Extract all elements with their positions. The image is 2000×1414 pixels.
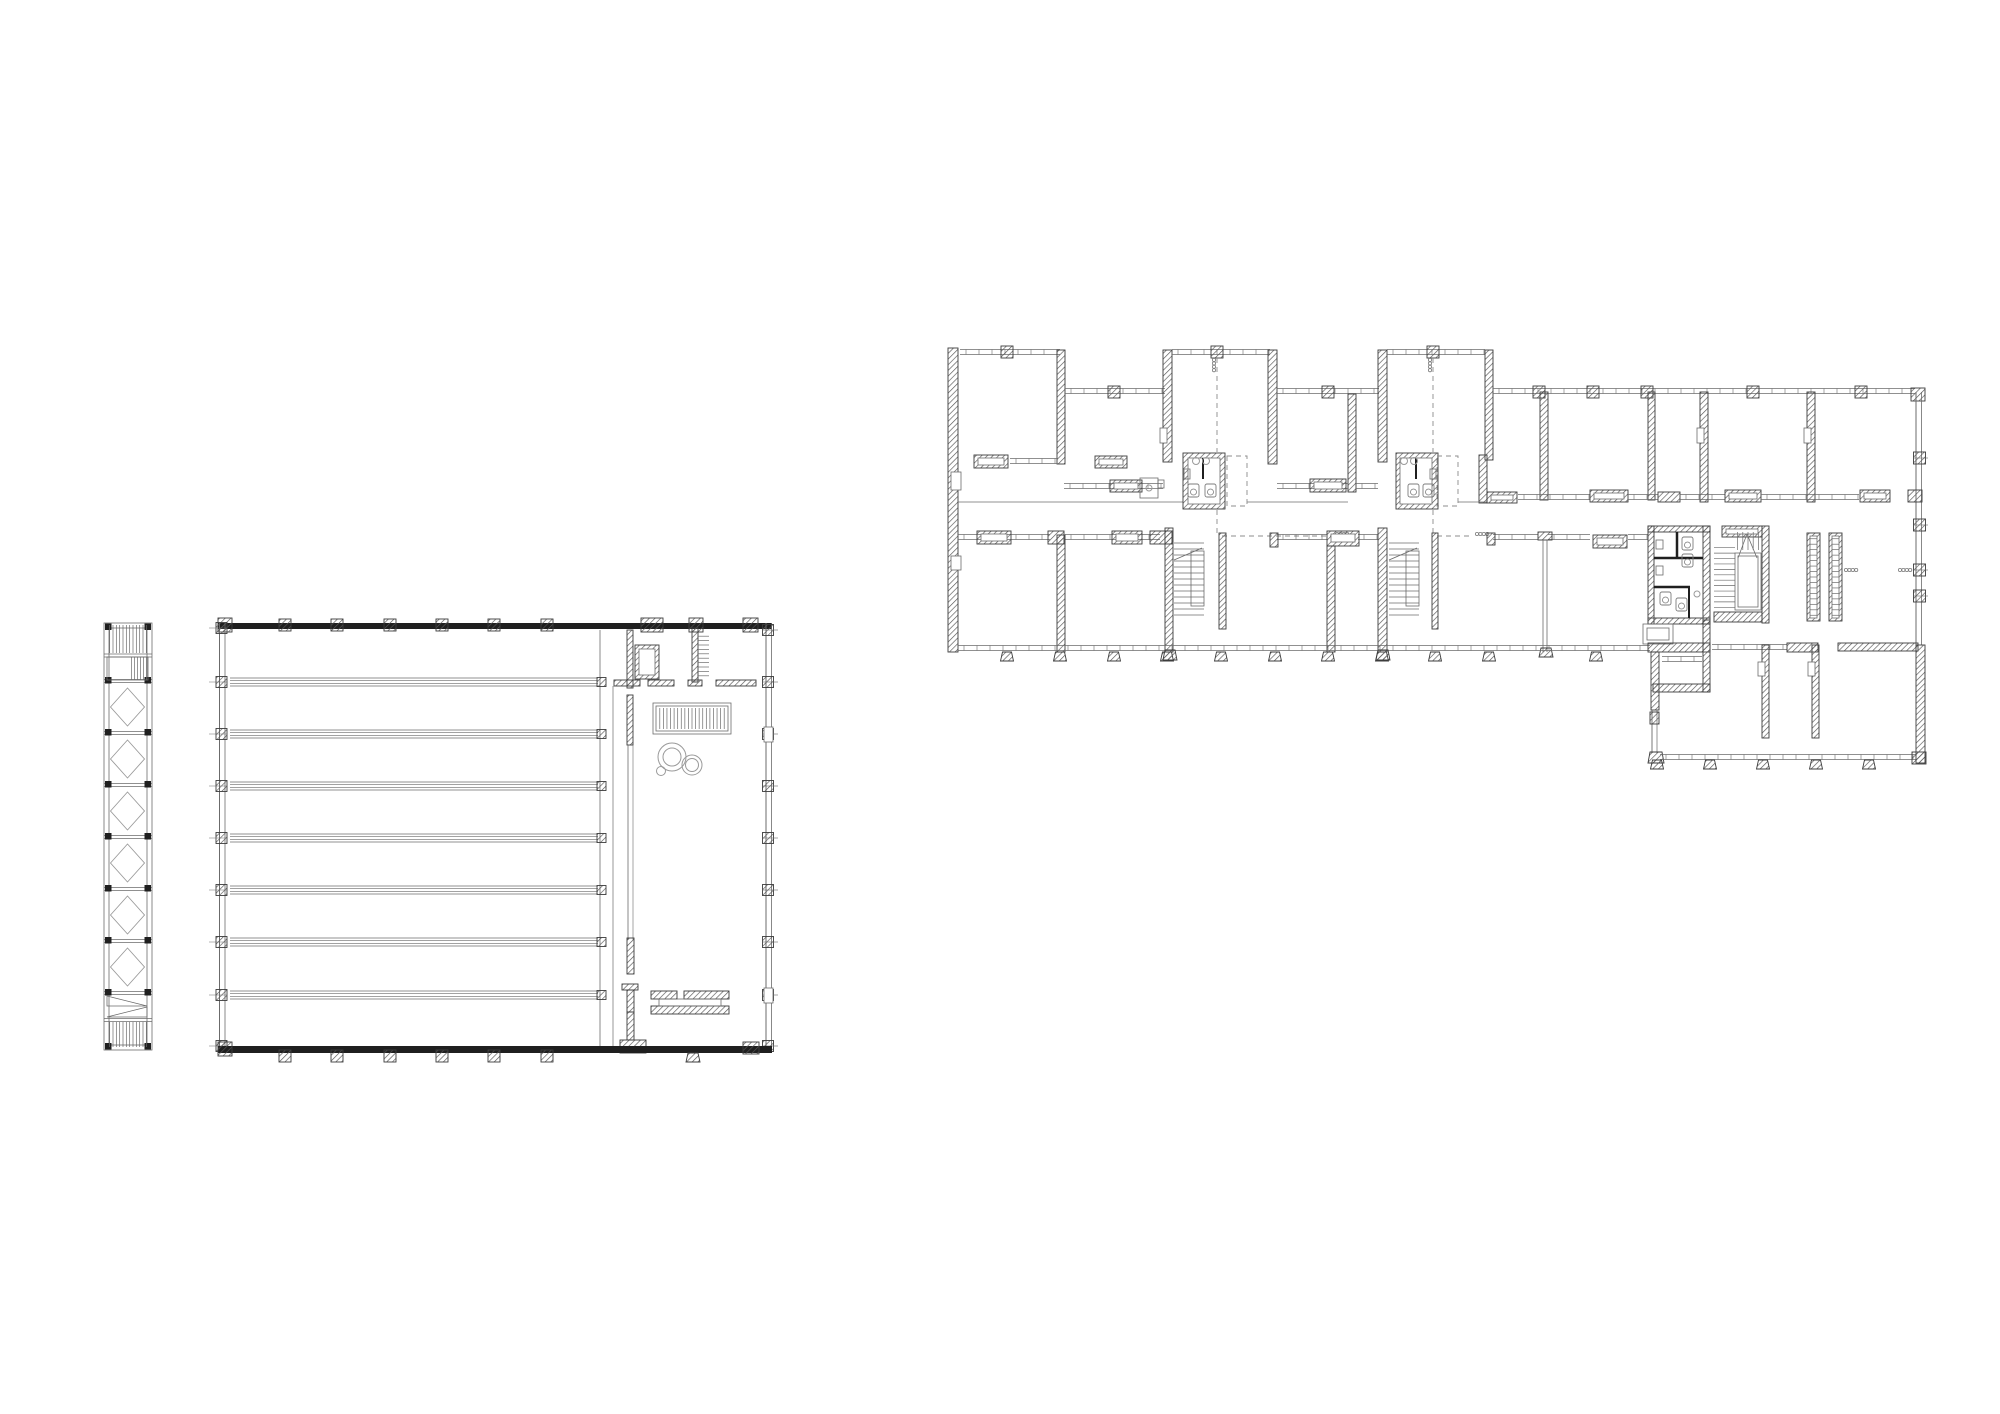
hall-level-plan [209,618,778,1062]
upper-floor-plan [948,346,1928,769]
drawing-sheet [0,0,2000,1414]
floor-plan-drawing [0,0,2000,1414]
stair-tower-section-plan [104,623,152,1050]
